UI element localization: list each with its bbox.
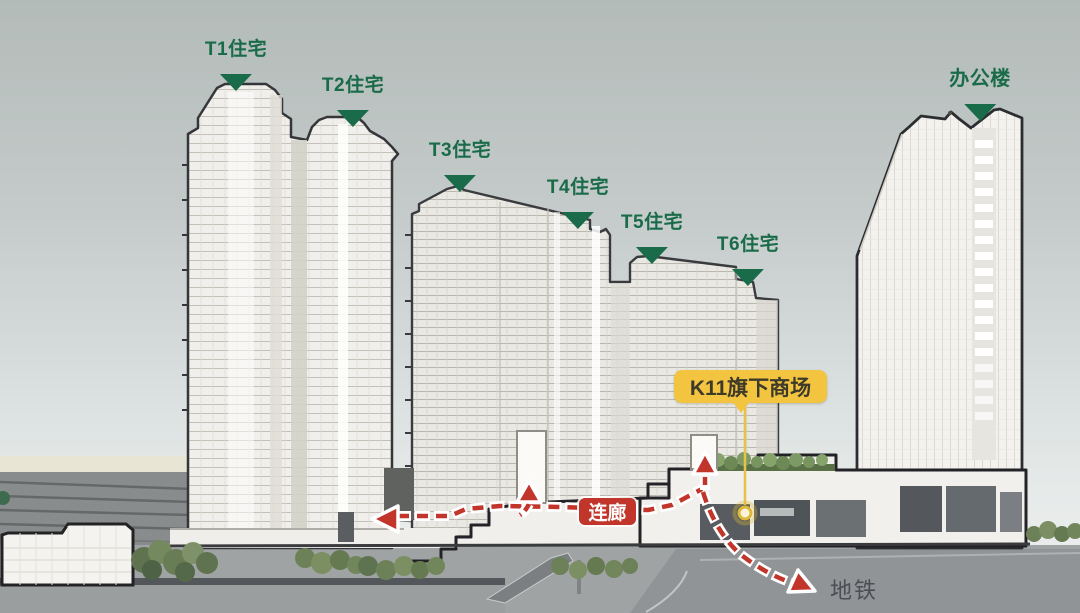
t3-marker-triangle-icon xyxy=(444,175,476,192)
label-office-text: 办公楼 xyxy=(949,62,1011,91)
low-rise-building xyxy=(2,524,133,585)
office-marker-triangle-icon xyxy=(964,104,996,121)
label-t4-residential: T4住宅 xyxy=(547,172,609,229)
corridor-badge-text: 连廊 xyxy=(588,498,626,525)
subway-label: 地铁 xyxy=(830,573,878,605)
t4-marker-triangle-icon xyxy=(562,212,594,229)
t5-marker-triangle-icon xyxy=(636,247,668,264)
scene-rendering xyxy=(0,0,1080,613)
k11-badge-pointer-icon xyxy=(732,401,750,413)
mall-base-line xyxy=(170,544,1030,546)
label-t1-text: T1住宅 xyxy=(205,34,267,61)
t1-marker-triangle-icon xyxy=(220,74,252,91)
label-t4-text: T4住宅 xyxy=(547,172,609,199)
t6-marker-triangle-icon xyxy=(732,269,764,286)
label-t1-residential: T1住宅 xyxy=(205,34,267,91)
label-t5-text: T5住宅 xyxy=(621,207,683,234)
label-t3-text: T3住宅 xyxy=(429,135,491,162)
corridor-badge: 连廊 xyxy=(579,498,636,525)
t2-marker-triangle-icon xyxy=(337,110,369,127)
label-t2-text: T2住宅 xyxy=(322,70,384,97)
label-t2-residential: T2住宅 xyxy=(322,70,384,127)
label-t3-residential: T3住宅 xyxy=(429,135,491,192)
label-office-tower: 办公楼 xyxy=(949,62,1011,121)
label-t6-text: T6住宅 xyxy=(717,229,779,256)
k11-mall-badge-text: K11旗下商场 xyxy=(690,372,811,402)
label-t5-residential: T5住宅 xyxy=(621,207,683,264)
architectural-elevation-diagram: T1住宅 T2住宅 T3住宅 T4住宅 T5住宅 T6住宅 办公楼 K11旗下商… xyxy=(0,0,1080,613)
k11-mall-badge: K11旗下商场 xyxy=(674,370,827,403)
tower-t1-t2-block xyxy=(182,84,398,548)
label-t6-residential: T6住宅 xyxy=(717,229,779,286)
